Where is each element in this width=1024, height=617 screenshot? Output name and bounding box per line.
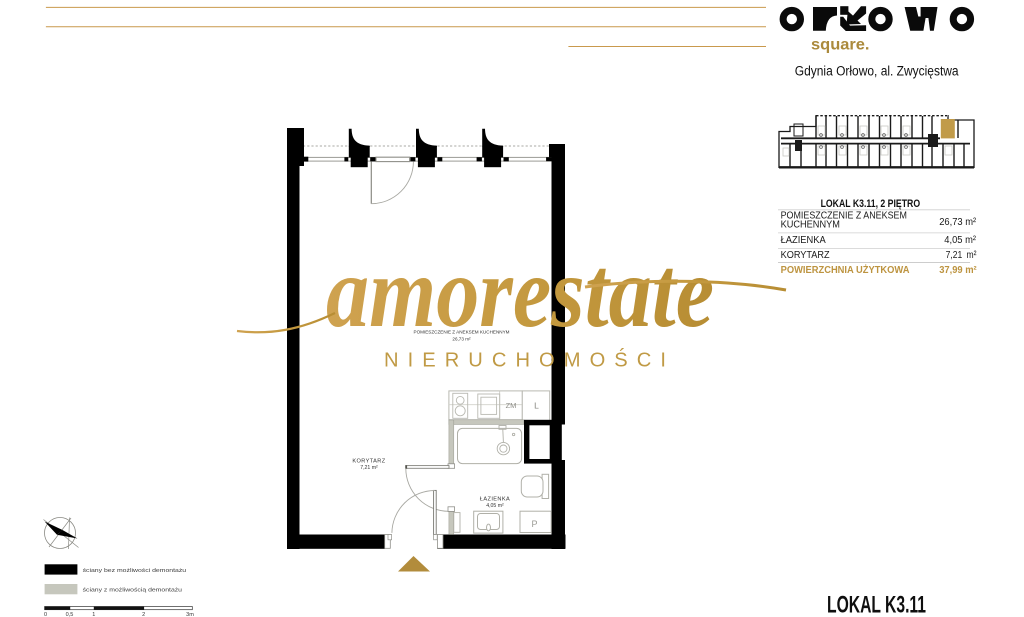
svg-text:Gdynia Orłowo, al. Zwycięstwa: Gdynia Orłowo, al. Zwycięstwa (795, 64, 959, 79)
svg-text:4,05 m²: 4,05 m² (944, 235, 976, 246)
svg-text:3m: 3m (186, 612, 194, 617)
svg-text:KORYTARZ: KORYTARZ (352, 459, 385, 465)
svg-text:7,21 m²: 7,21 m² (946, 250, 977, 261)
svg-text:KORYTARZ: KORYTARZ (781, 250, 830, 261)
svg-text:ŁAZIENKA: ŁAZIENKA (781, 235, 826, 246)
svg-text:LOKAL K3.11: LOKAL K3.11 (827, 592, 926, 617)
svg-text:7,21 m²: 7,21 m² (360, 465, 378, 471)
svg-text:KUCHENNYM: KUCHENNYM (781, 220, 840, 231)
svg-text:ściany bez możliwości demontaż: ściany bez możliwości demontażu (83, 568, 187, 574)
svg-text:ŁAZIENKA: ŁAZIENKA (480, 497, 510, 503)
svg-text:NIERUCHOMOŚCI: NIERUCHOMOŚCI (384, 348, 675, 372)
svg-text:P: P (531, 519, 537, 529)
svg-text:LOKAL K3.11, 2 PIĘTRO: LOKAL K3.11, 2 PIĘTRO (821, 198, 921, 210)
svg-text:26,73 m²: 26,73 m² (939, 217, 977, 228)
svg-text:2: 2 (142, 612, 145, 617)
svg-text:ZM: ZM (506, 401, 517, 410)
svg-text:0,5: 0,5 (66, 612, 74, 617)
svg-text:1: 1 (92, 612, 95, 617)
svg-text:ściany z możliwością demontażu: ściany z możliwością demontażu (83, 588, 182, 594)
svg-text:L: L (534, 401, 539, 411)
svg-text:square.: square. (811, 37, 870, 54)
svg-text:4,05 m²: 4,05 m² (486, 503, 504, 509)
svg-text:0: 0 (44, 612, 47, 617)
svg-text:amorestate: amorestate (326, 236, 714, 349)
svg-text:POWIERZCHNIA UŻYTKOWA: POWIERZCHNIA UŻYTKOWA (781, 263, 910, 276)
svg-text:37,99 m²: 37,99 m² (939, 265, 977, 276)
